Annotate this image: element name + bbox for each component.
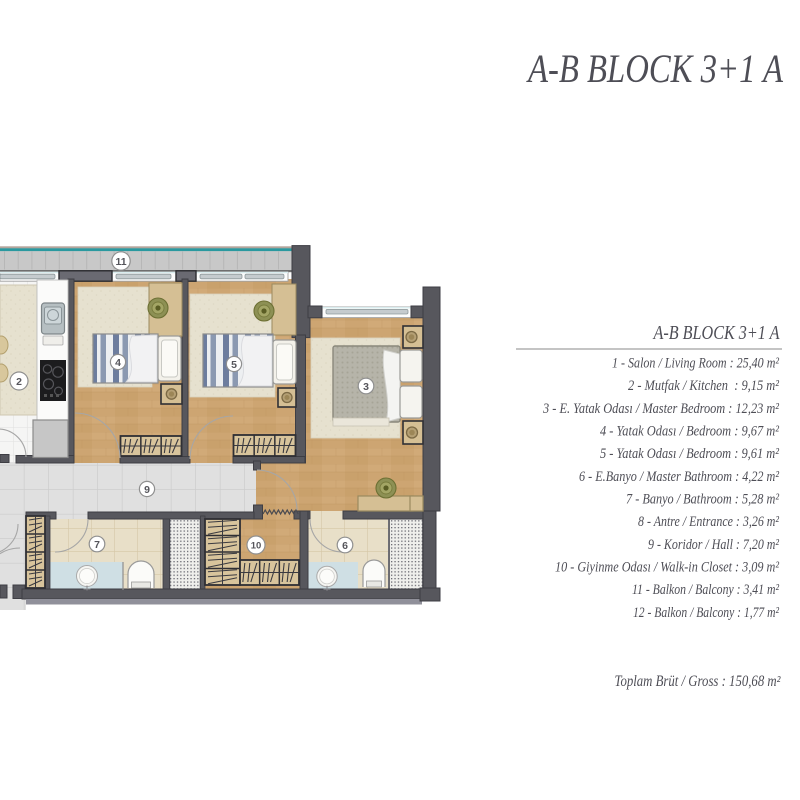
svg-text:7: 7 bbox=[94, 539, 100, 551]
svg-text:4 - Yatak Odası / Bedroom : 9,: 4 - Yatak Odası / Bedroom : 9,67 m² bbox=[600, 424, 779, 440]
svg-text:10 - Giyinme Odası / Walk-in C: 10 - Giyinme Odası / Walk-in Closet : 3,… bbox=[555, 560, 779, 576]
svg-text:3: 3 bbox=[363, 381, 369, 393]
svg-text:6: 6 bbox=[342, 540, 348, 552]
svg-text:6 - E.Banyo / Master Bathroom: 6 - E.Banyo / Master Bathroom : 4,22 m² bbox=[579, 469, 779, 485]
svg-text:2: 2 bbox=[16, 376, 22, 388]
svg-text:A-B BLOCK 3+1 A: A-B BLOCK 3+1 A bbox=[652, 322, 780, 344]
svg-text:4: 4 bbox=[115, 357, 121, 369]
svg-text:3 - E. Yatak Odası / Master Be: 3 - E. Yatak Odası / Master Bedroom : 12… bbox=[542, 401, 779, 417]
svg-text:11: 11 bbox=[115, 256, 126, 268]
svg-text:8 - Antre / Entrance : 3,26 m²: 8 - Antre / Entrance : 3,26 m² bbox=[638, 514, 779, 530]
svg-text:10: 10 bbox=[251, 540, 262, 551]
svg-text:Toplam Brüt / Gross : 150,68 m: Toplam Brüt / Gross : 150,68 m² bbox=[615, 673, 781, 690]
svg-text:9 - Koridor / Hall : 7,20 m²: 9 - Koridor / Hall : 7,20 m² bbox=[648, 537, 779, 553]
svg-text:1 - Salon / Living Room : 25,4: 1 - Salon / Living Room : 25,40 m² bbox=[612, 356, 779, 372]
svg-text:7 - Banyo / Bathroom : 5,28 m²: 7 - Banyo / Bathroom : 5,28 m² bbox=[626, 492, 779, 508]
svg-text:2 - Mutfak / Kitchen : 9,15 m: 2 - Mutfak / Kitchen : 9,15 m² bbox=[628, 378, 779, 394]
svg-text:11 - Balkon / Balcony : 3,41 m: 11 - Balkon / Balcony : 3,41 m² bbox=[632, 582, 779, 598]
svg-text:A-B BLOCK 3+1 A: A-B BLOCK 3+1 A bbox=[526, 46, 784, 91]
svg-text:5: 5 bbox=[231, 359, 237, 371]
svg-text:9: 9 bbox=[144, 484, 150, 496]
svg-text:12 - Balkon / Balcony : 1,77 m: 12 - Balkon / Balcony : 1,77 m² bbox=[633, 605, 779, 621]
svg-text:5 - Yatak Odası / Bedroom : 9,: 5 - Yatak Odası / Bedroom : 9,61 m² bbox=[600, 446, 779, 462]
